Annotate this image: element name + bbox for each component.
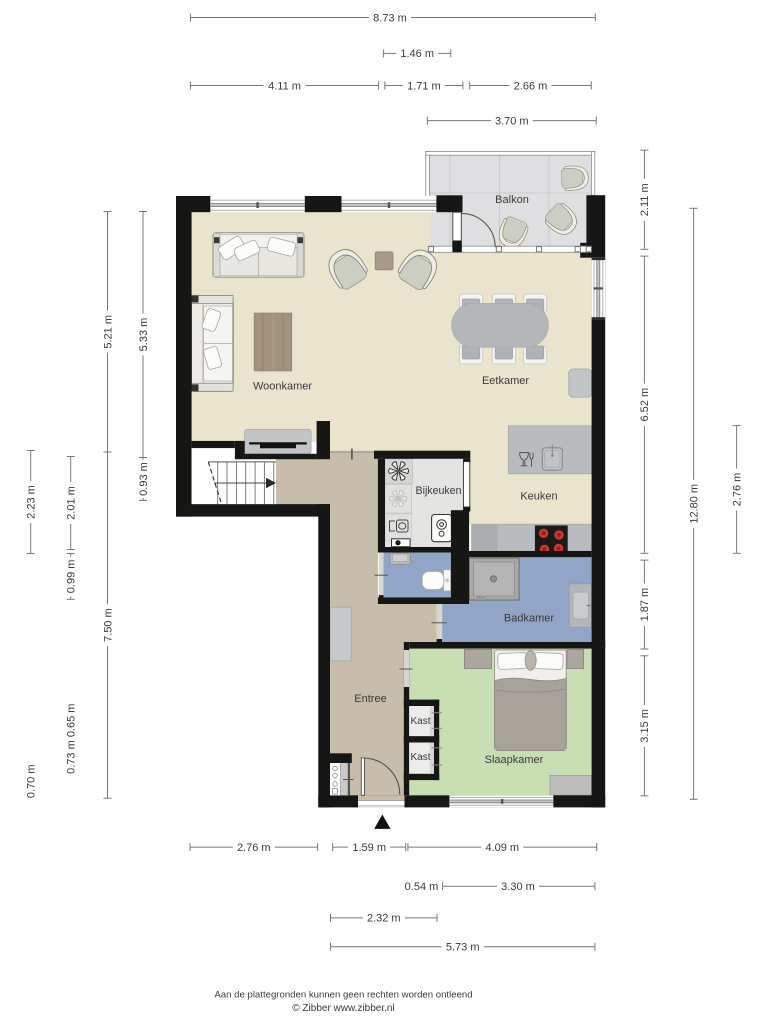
svg-text:Entree: Entree (354, 693, 386, 705)
svg-text:5.21 m: 5.21 m (102, 315, 114, 349)
svg-text:12.80 m: 12.80 m (688, 484, 700, 524)
svg-text:Woonkamer: Woonkamer (253, 380, 312, 392)
svg-text:3.70 m: 3.70 m (495, 115, 529, 127)
svg-text:6.52 m: 6.52 m (639, 388, 651, 422)
svg-text:2.32 m: 2.32 m (367, 913, 401, 925)
svg-text:2.01 m: 2.01 m (66, 486, 78, 520)
svg-text:0.93 m: 0.93 m (138, 462, 150, 496)
svg-text:7.50 m: 7.50 m (102, 608, 114, 642)
svg-text:0.73 m 0.65 m: 0.73 m 0.65 m (66, 704, 78, 774)
svg-text:Kast: Kast (410, 752, 430, 763)
svg-text:0.54 m: 0.54 m (405, 881, 439, 893)
svg-text:1.71 m: 1.71 m (407, 80, 441, 92)
svg-text:0.99 m: 0.99 m (66, 560, 78, 594)
svg-text:Aan de plattegronden kunnen ge: Aan de plattegronden kunnen geen rechten… (214, 990, 472, 1001)
svg-text:5.33 m: 5.33 m (138, 318, 150, 352)
svg-text:2.66 m: 2.66 m (514, 80, 548, 92)
svg-text:2.23 m: 2.23 m (26, 485, 38, 519)
svg-text:1.87 m: 1.87 m (639, 588, 651, 622)
svg-text:Eetkamer: Eetkamer (482, 375, 529, 387)
svg-text:4.11 m: 4.11 m (268, 80, 301, 92)
svg-text:2.76 m: 2.76 m (237, 842, 271, 854)
svg-text:5.73 m: 5.73 m (446, 942, 480, 954)
svg-text:Badkamer: Badkamer (504, 613, 554, 625)
svg-text:1.46 m: 1.46 m (400, 48, 434, 60)
svg-text:0.70 m: 0.70 m (26, 764, 38, 798)
svg-text:Bijkeuken: Bijkeuken (416, 485, 462, 497)
svg-text:Slaapkamer: Slaapkamer (485, 754, 544, 766)
svg-text:© Zibber www.zibber.nl: © Zibber www.zibber.nl (292, 1003, 394, 1014)
svg-text:Kast: Kast (410, 716, 430, 727)
svg-text:3.30 m: 3.30 m (501, 881, 535, 893)
svg-text:3.15 m: 3.15 m (639, 709, 651, 743)
svg-text:2.11 m: 2.11 m (639, 183, 651, 216)
svg-text:Keuken: Keuken (520, 491, 557, 503)
svg-text:2.76 m: 2.76 m (731, 473, 743, 507)
svg-text:Balkon: Balkon (495, 194, 529, 206)
svg-text:4.09 m: 4.09 m (485, 842, 519, 854)
svg-text:8.73 m: 8.73 m (373, 12, 407, 24)
svg-text:1.59 m: 1.59 m (352, 842, 386, 854)
